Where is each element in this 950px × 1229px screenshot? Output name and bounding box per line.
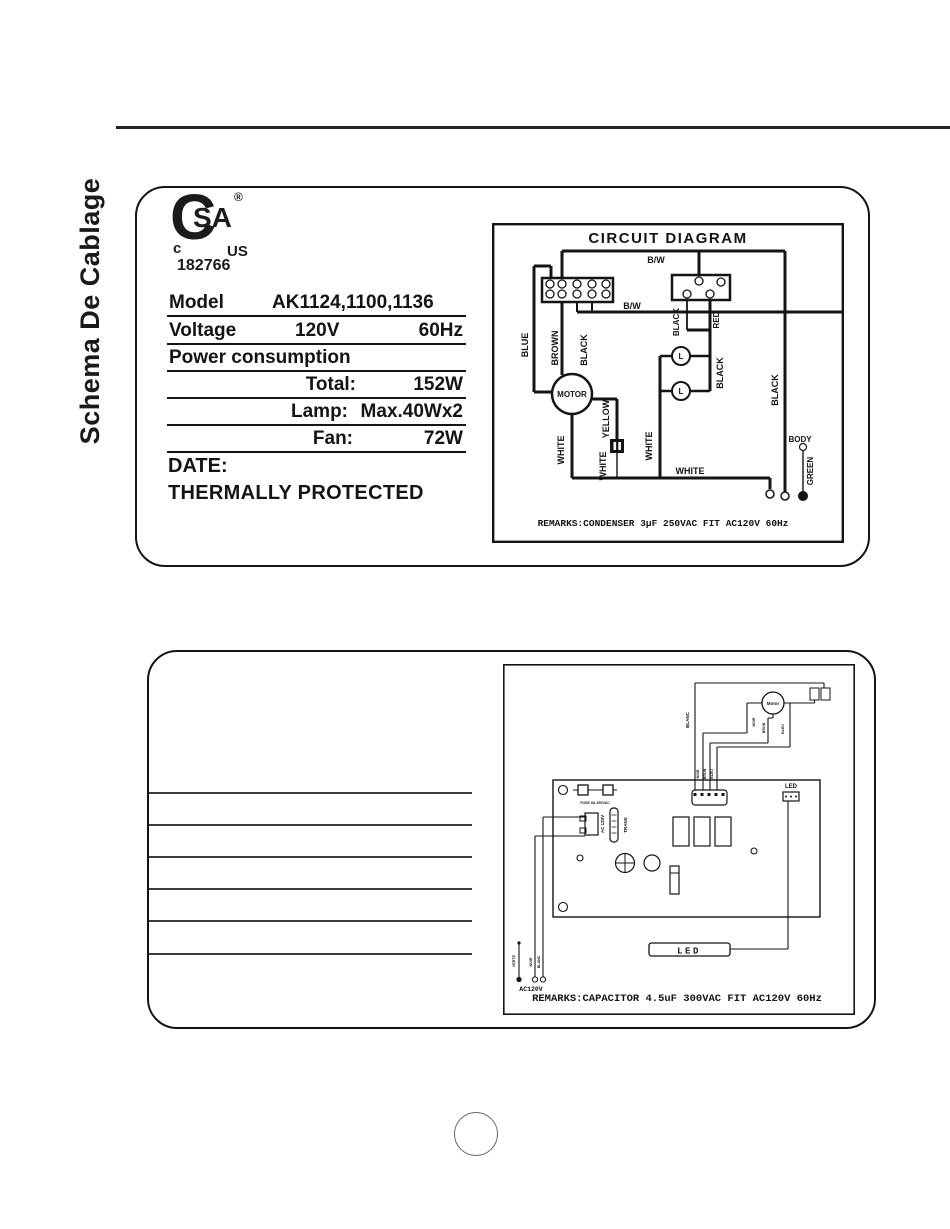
wire-label-brun-motor: BRUN bbox=[762, 722, 766, 733]
spec-row-lamp: Lamp: Max.40Wx2 bbox=[167, 397, 466, 426]
wire-label-white-cap: WHITE bbox=[598, 452, 608, 481]
wire-label-bleu-motor: BLEU bbox=[781, 724, 785, 734]
fuse-symbol: FUSE 8A 250VAC bbox=[573, 785, 617, 805]
blank-line bbox=[149, 824, 472, 826]
circuit-border bbox=[493, 224, 843, 542]
fan-value: 72W bbox=[424, 428, 463, 450]
fuse-label: FUSE 8A 250VAC bbox=[580, 801, 610, 805]
wire-label-verte: VERTE bbox=[512, 954, 516, 967]
lamp-label: Lamp: bbox=[291, 401, 348, 423]
total-value: 152W bbox=[413, 374, 463, 396]
pcb-diagram-border bbox=[504, 665, 854, 1014]
header-rule bbox=[116, 126, 950, 129]
spec-row-voltage: Voltage 120V 60Hz bbox=[167, 315, 466, 345]
blank-line bbox=[149, 953, 472, 955]
wire-label-yellow: YELLOW bbox=[601, 399, 611, 438]
lamp-symbols: L L bbox=[672, 347, 690, 400]
lamp2-label: L bbox=[679, 387, 684, 396]
frequency-value: 60Hz bbox=[419, 320, 463, 342]
thermally-protected-label: THERMALLY PROTECTED bbox=[168, 482, 424, 505]
lamp-value: Max.40Wx2 bbox=[361, 401, 463, 423]
date-label: DATE: bbox=[168, 455, 228, 478]
total-label: Total: bbox=[306, 374, 356, 396]
spec-row-model: Model AK1124,1100,1136 bbox=[167, 287, 466, 317]
model-value: AK1124,1100,1136 bbox=[272, 292, 434, 314]
motor-label: MOTOR bbox=[557, 390, 587, 399]
wire-label-black-conn: BLACK bbox=[672, 308, 681, 336]
wire-label-black-lamp: BLACK bbox=[715, 357, 725, 389]
wire-label-blue: BLUE bbox=[520, 333, 530, 358]
transformer-symbol: TRANS bbox=[610, 808, 628, 842]
ac-input-terminals: VERTE NOIR BLANC AC120V bbox=[512, 941, 546, 993]
wire-label-black-left: BLACK bbox=[579, 334, 589, 366]
spec-row-power: Power consumption bbox=[167, 343, 466, 372]
wire-label-noir-motor: NOIR bbox=[752, 717, 756, 726]
motor-connector bbox=[692, 790, 727, 805]
ground-terminals bbox=[766, 444, 808, 501]
wire-label-white-motor: WHITE bbox=[556, 436, 566, 465]
wire-label-green: GREEN bbox=[806, 457, 815, 486]
csa-logo-sa: SA bbox=[193, 202, 232, 234]
led-connector: LED bbox=[783, 784, 799, 801]
electrolytic-cap-symbol bbox=[670, 866, 679, 894]
csa-canada-mark: c bbox=[173, 240, 181, 257]
relay-symbols bbox=[673, 817, 731, 846]
trimmer-pot-symbol bbox=[616, 854, 635, 873]
wire-label-blanc-in: BLANC bbox=[537, 955, 541, 968]
wire-label-bw-top: B/W bbox=[647, 255, 665, 265]
wire-label-brown: BROWN bbox=[550, 331, 560, 366]
terminal-strip-left bbox=[542, 278, 613, 302]
pcb-remarks: REMARKS:CAPACITOR 4.5uF 300VAC FIT AC120… bbox=[532, 993, 822, 1005]
wire-label-bleu-conn: BLEU bbox=[710, 769, 714, 779]
circuit-remarks: REMARKS:CONDENSER 3µF 250VAC FIT AC120V … bbox=[538, 518, 789, 529]
wire-label-noir-conn: NOIR bbox=[696, 769, 700, 778]
capacitor-symbol bbox=[610, 439, 624, 453]
registered-mark-icon: ® bbox=[234, 190, 243, 204]
led-connector-label: LED bbox=[785, 784, 798, 790]
run-capacitor-symbol bbox=[810, 688, 830, 700]
page-number-circle bbox=[454, 1112, 498, 1156]
ac-input-connector: AC 120V bbox=[580, 813, 605, 835]
power-consumption-label: Power consumption bbox=[169, 347, 351, 369]
csa-certificate-number: 182766 bbox=[177, 257, 230, 275]
wire-label-black-right: BLACK bbox=[770, 374, 780, 406]
wire-label-brun-conn: BRUN bbox=[703, 768, 707, 779]
page-side-title: Schema De Cablage bbox=[75, 151, 109, 471]
blank-line bbox=[149, 888, 472, 890]
wire-label-red: RED bbox=[712, 311, 721, 328]
trans-label: TRANS bbox=[623, 817, 628, 833]
lamp1-label: L bbox=[679, 352, 684, 361]
body-label: BODY bbox=[788, 435, 812, 444]
blank-line bbox=[149, 792, 472, 794]
pcb-wires bbox=[519, 683, 824, 977]
voltage-value: 120V bbox=[295, 320, 339, 342]
wire-label-bw-mid: B/W bbox=[623, 301, 641, 311]
spec-row-total: Total: 152W bbox=[167, 370, 466, 399]
circuit-diagram: CIRCUIT DIAGRAM MOTOR L L bbox=[492, 223, 844, 543]
wire-label-blanc: BLANC bbox=[685, 711, 690, 727]
led-box-label: LED bbox=[677, 947, 701, 957]
wire-label-white-lamp: WHITE bbox=[644, 432, 654, 461]
buzzer-symbol bbox=[644, 855, 660, 871]
fan-label: Fan: bbox=[313, 428, 353, 450]
fan-motor-label: Motor bbox=[767, 701, 780, 706]
blank-line bbox=[149, 920, 472, 922]
csa-logo: C SA ® c US bbox=[172, 192, 258, 264]
wire-label-noir-in: NOIR bbox=[529, 957, 533, 966]
model-label: Model bbox=[169, 292, 224, 314]
wire-label-white-bottom: WHITE bbox=[676, 466, 705, 476]
blank-line bbox=[149, 856, 472, 858]
ac120v-pcb-label: AC 120V bbox=[600, 815, 605, 833]
led-box: LED bbox=[649, 943, 730, 957]
voltage-label: Voltage bbox=[169, 320, 236, 342]
circuit-title: CIRCUIT DIAGRAM bbox=[588, 230, 747, 247]
terminal-strip-right bbox=[672, 275, 730, 300]
pcb-wiring-diagram: Motor BLANC NOIR BRUN BLEU NOIR BRUN BLE… bbox=[503, 664, 855, 1015]
spec-row-fan: Fan: 72W bbox=[167, 424, 466, 453]
ac120v-input-label: AC120V bbox=[519, 986, 543, 993]
